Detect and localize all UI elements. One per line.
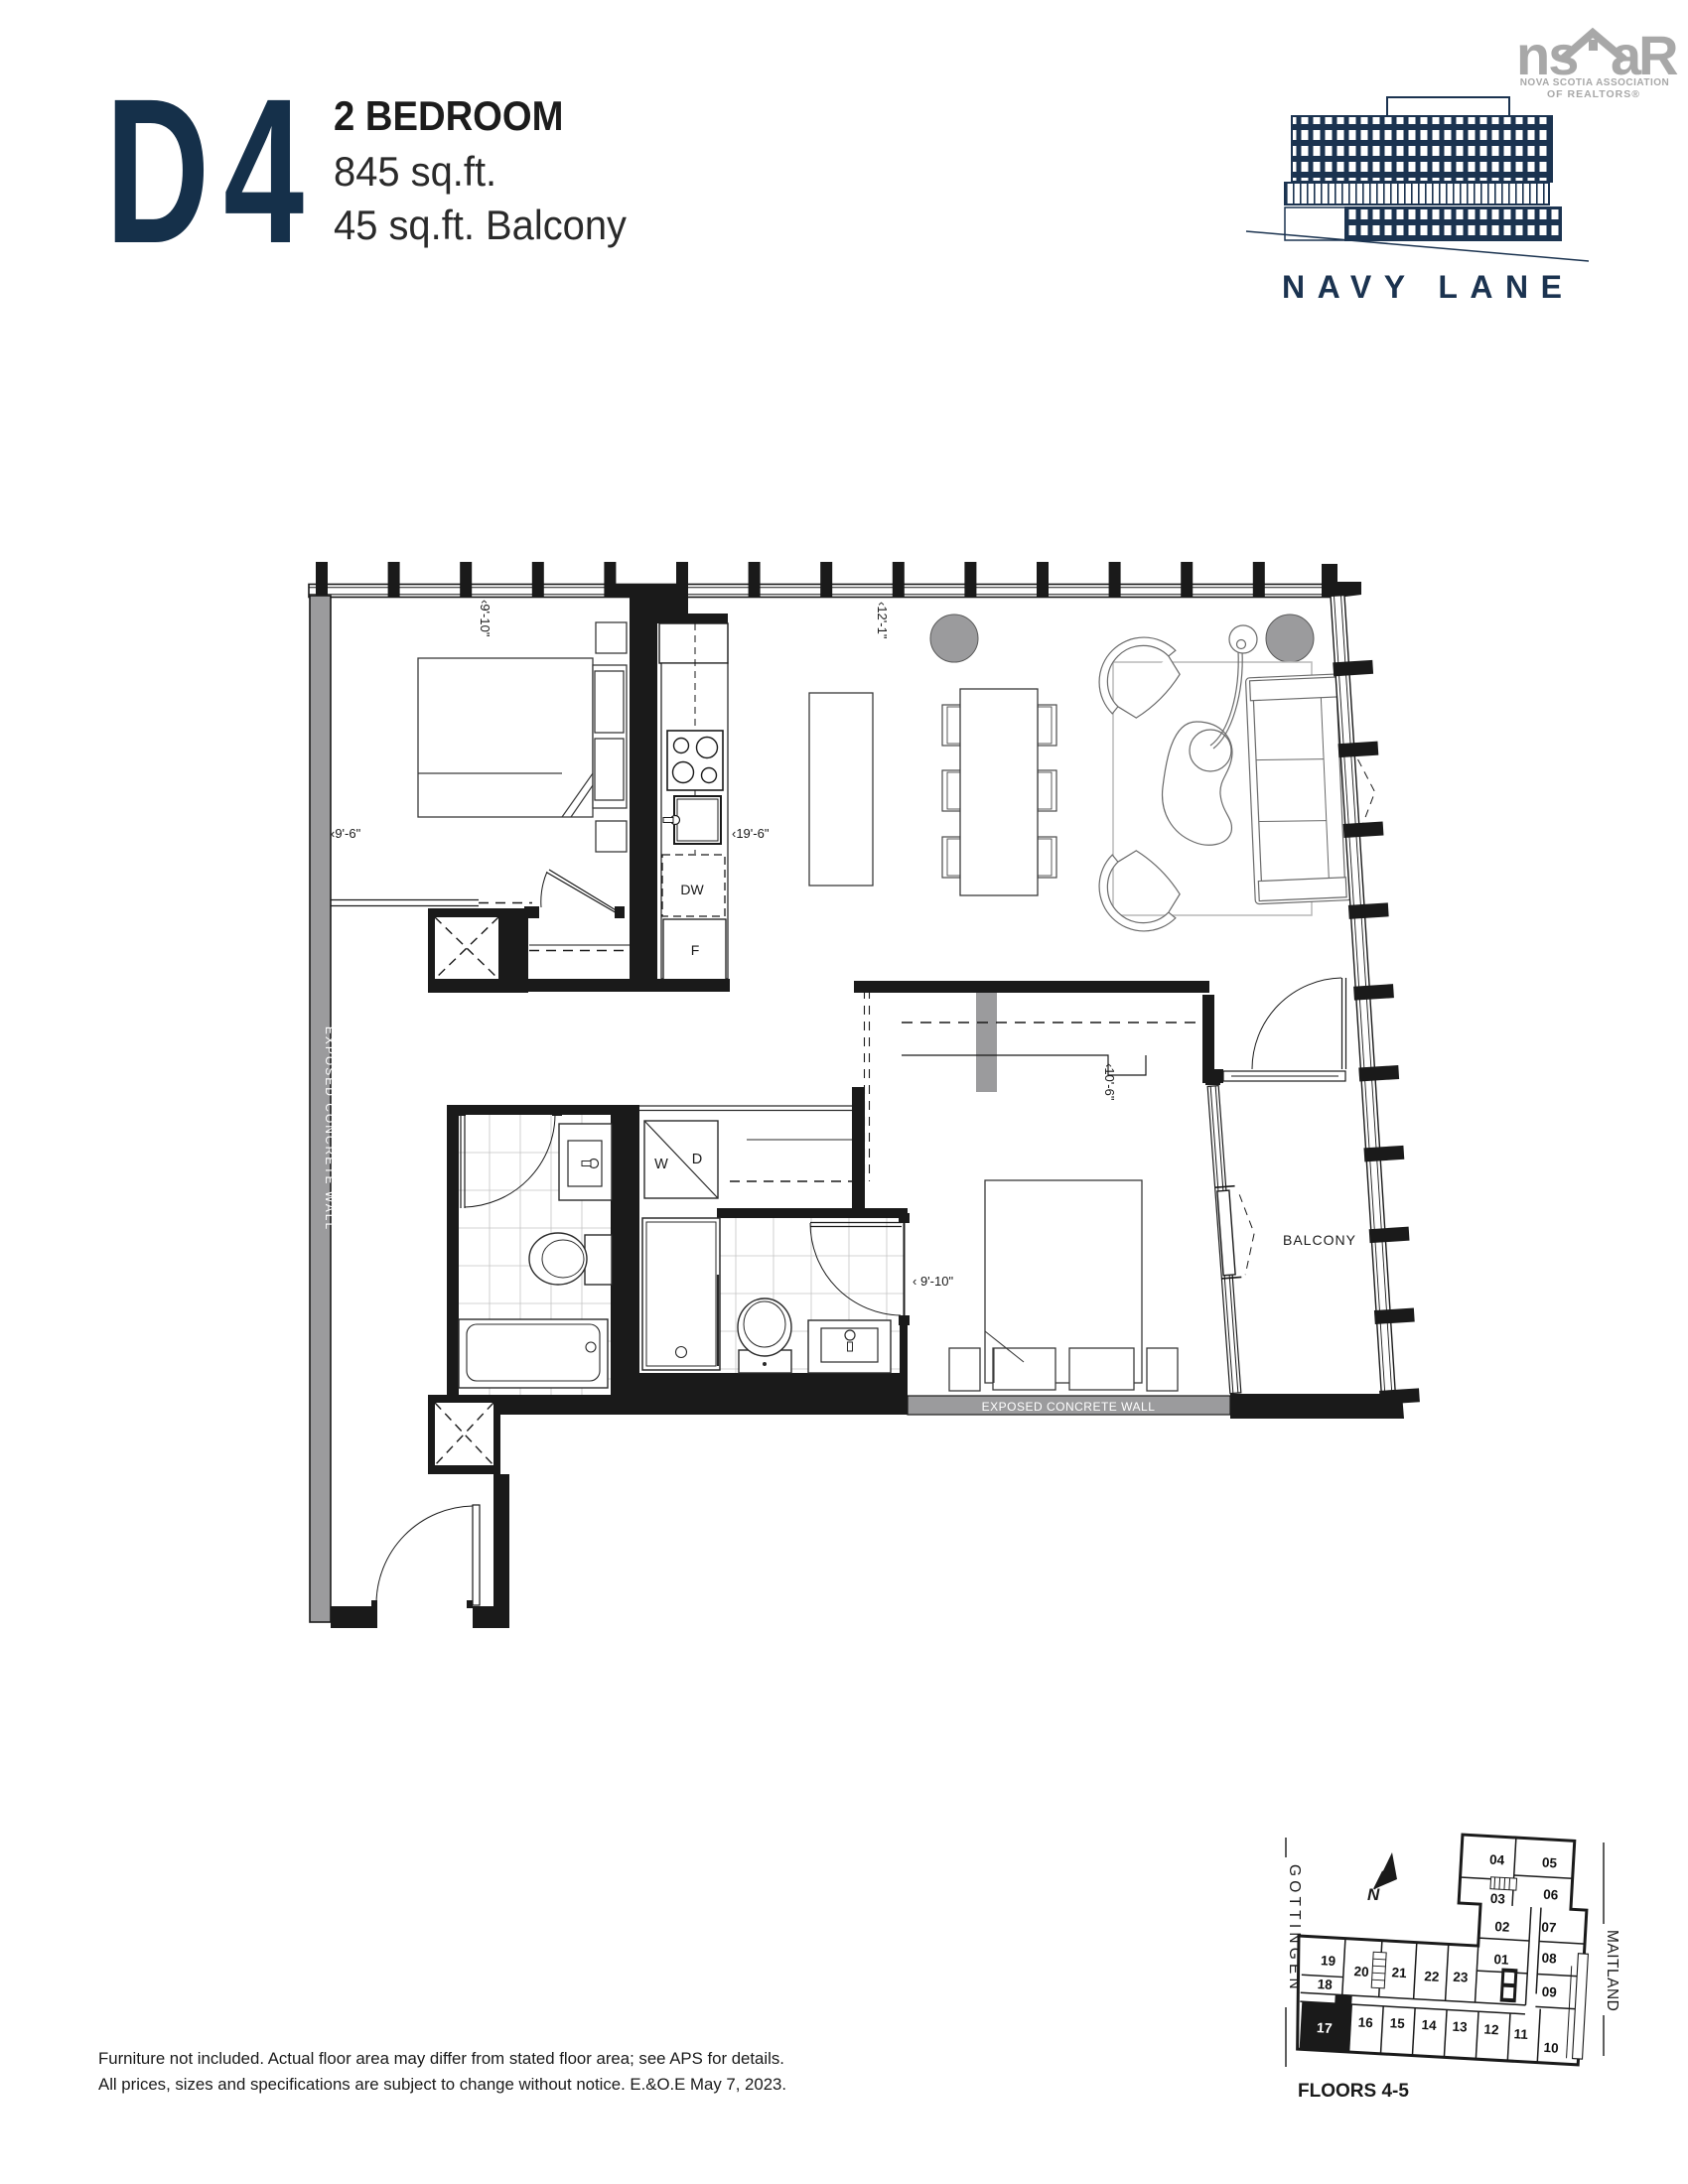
svg-text:12: 12 (1483, 2022, 1499, 2038)
svg-text:08: 08 (1541, 1951, 1557, 1967)
svg-text:BALCONY: BALCONY (1283, 1232, 1356, 1248)
svg-text:‹9'-10": ‹9'-10" (478, 600, 492, 637)
svg-text:FLOORS 4-5: FLOORS 4-5 (1298, 2081, 1409, 2102)
svg-text:10: 10 (1543, 2040, 1559, 2056)
svg-text:‹12'-1": ‹12'-1" (875, 602, 890, 639)
svg-text:F: F (691, 942, 700, 958)
svg-text:EXPOSED CONCRETE WALL: EXPOSED CONCRETE WALL (323, 1026, 337, 1231)
svg-text:DW: DW (680, 882, 704, 897)
svg-text:20: 20 (1353, 1964, 1369, 1979)
svg-text:14: 14 (1421, 2017, 1437, 2033)
svg-text:03: 03 (1489, 1891, 1505, 1907)
svg-text:17: 17 (1317, 2019, 1334, 2036)
svg-text:18: 18 (1317, 1977, 1333, 1992)
svg-text:‹10'-6": ‹10'-6" (1102, 1063, 1117, 1101)
svg-text:11: 11 (1513, 2026, 1529, 2042)
svg-text:19: 19 (1321, 1953, 1336, 1969)
svg-text:23: 23 (1453, 1970, 1469, 1985)
svg-text:MAITLAND: MAITLAND (1604, 1930, 1620, 2011)
svg-text:‹ 9'-10": ‹ 9'-10" (913, 1274, 953, 1289)
svg-text:D: D (692, 1152, 702, 1167)
svg-text:‹9'-6": ‹9'-6" (331, 826, 361, 841)
svg-text:OF REALTORS®: OF REALTORS® (1547, 88, 1640, 100)
svg-text:06: 06 (1543, 1887, 1559, 1903)
svg-text:NOVA SCOTIA ASSOCIATION: NOVA SCOTIA ASSOCIATION (1520, 77, 1670, 88)
svg-text:‹19'-6": ‹19'-6" (732, 826, 770, 841)
svg-text:22: 22 (1424, 1969, 1440, 1984)
svg-text:04: 04 (1489, 1852, 1505, 1868)
svg-text:02: 02 (1494, 1919, 1510, 1935)
svg-text:21: 21 (1391, 1965, 1407, 1980)
svg-text:05: 05 (1542, 1855, 1558, 1871)
svg-text:07: 07 (1541, 1920, 1557, 1936)
svg-text:W: W (654, 1157, 668, 1172)
svg-text:13: 13 (1452, 2019, 1468, 2035)
svg-text:15: 15 (1389, 2015, 1405, 2031)
svg-text:NAVY LANE: NAVY LANE (1282, 269, 1574, 305)
svg-text:09: 09 (1541, 1984, 1557, 2000)
svg-text:N: N (1367, 1885, 1380, 1904)
svg-text:01: 01 (1493, 1952, 1509, 1968)
svg-text:16: 16 (1357, 2014, 1373, 2030)
svg-text:EXPOSED CONCRETE WALL: EXPOSED CONCRETE WALL (982, 1400, 1156, 1414)
